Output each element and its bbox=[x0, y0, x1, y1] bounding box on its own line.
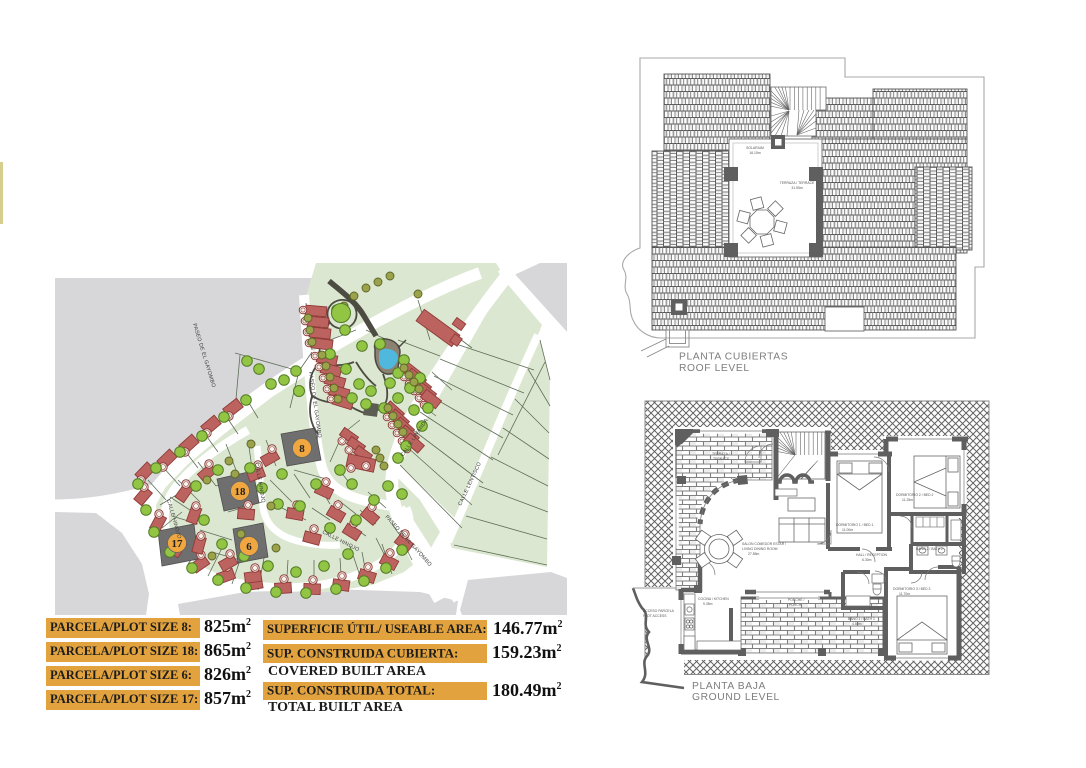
svg-text:4.60m: 4.60m bbox=[852, 622, 862, 626]
svg-text:TERRAZA /: TERRAZA / bbox=[712, 452, 730, 456]
svg-text:11.70m: 11.70m bbox=[899, 592, 910, 596]
svg-text:PORCH: PORCH bbox=[789, 603, 802, 607]
svg-text:PLOT ACCESS: PLOT ACCESS bbox=[643, 614, 667, 618]
svg-text:SALON COMEDOR ESTAR /: SALON COMEDOR ESTAR / bbox=[742, 542, 786, 546]
svg-text:ROOF LEVEL: ROOF LEVEL bbox=[679, 363, 750, 374]
svg-text:11.25m: 11.25m bbox=[902, 498, 913, 502]
svg-text:SOLARIUM: SOLARIUM bbox=[746, 146, 764, 150]
svg-text:BAÑO 1 / BATH 1: BAÑO 1 / BATH 1 bbox=[848, 616, 875, 621]
svg-text:17: 17 bbox=[172, 538, 184, 550]
svg-text:18: 18 bbox=[235, 486, 247, 498]
svg-text:DORMITORIO 2 / BED 2: DORMITORIO 2 / BED 2 bbox=[896, 493, 934, 497]
svg-text:BAÑO 2 / BATH 2: BAÑO 2 / BATH 2 bbox=[916, 546, 943, 551]
svg-text:HALL / RECEPTION: HALL / RECEPTION bbox=[856, 553, 888, 557]
svg-text:11.00m: 11.00m bbox=[842, 528, 853, 532]
svg-text:TERRAZA / TERRACE: TERRAZA / TERRACE bbox=[780, 181, 815, 185]
svg-text:DORMITORIO 1 / BED 1: DORMITORIO 1 / BED 1 bbox=[836, 523, 874, 527]
svg-text:DORMITORIO 3 / BED 3: DORMITORIO 3 / BED 3 bbox=[893, 587, 931, 591]
svg-text:PLANTA CUBIERTAS: PLANTA CUBIERTAS bbox=[679, 352, 788, 363]
svg-text:8: 8 bbox=[299, 443, 305, 455]
svg-text:ACCESO PARCELA: ACCESO PARCELA bbox=[643, 609, 675, 613]
svg-text:PORCHE /: PORCHE / bbox=[788, 598, 804, 602]
svg-text:6.30m: 6.30m bbox=[862, 558, 872, 562]
svg-text:31.55m: 31.55m bbox=[791, 186, 802, 190]
svg-text:GROUND LEVEL: GROUND LEVEL bbox=[692, 692, 780, 703]
svg-text:PLANTA BAJA: PLANTA BAJA bbox=[692, 681, 766, 692]
svg-text:27.85m: 27.85m bbox=[748, 552, 759, 556]
svg-text:LIVING DINING ROOM: LIVING DINING ROOM bbox=[742, 547, 778, 551]
svg-text:TERRACE: TERRACE bbox=[713, 457, 730, 461]
svg-text:16.15m: 16.15m bbox=[749, 151, 760, 155]
svg-text:9.35m: 9.35m bbox=[703, 602, 713, 606]
svg-text:6: 6 bbox=[246, 541, 252, 553]
svg-text:COCINA / KITCHEN: COCINA / KITCHEN bbox=[698, 597, 729, 601]
